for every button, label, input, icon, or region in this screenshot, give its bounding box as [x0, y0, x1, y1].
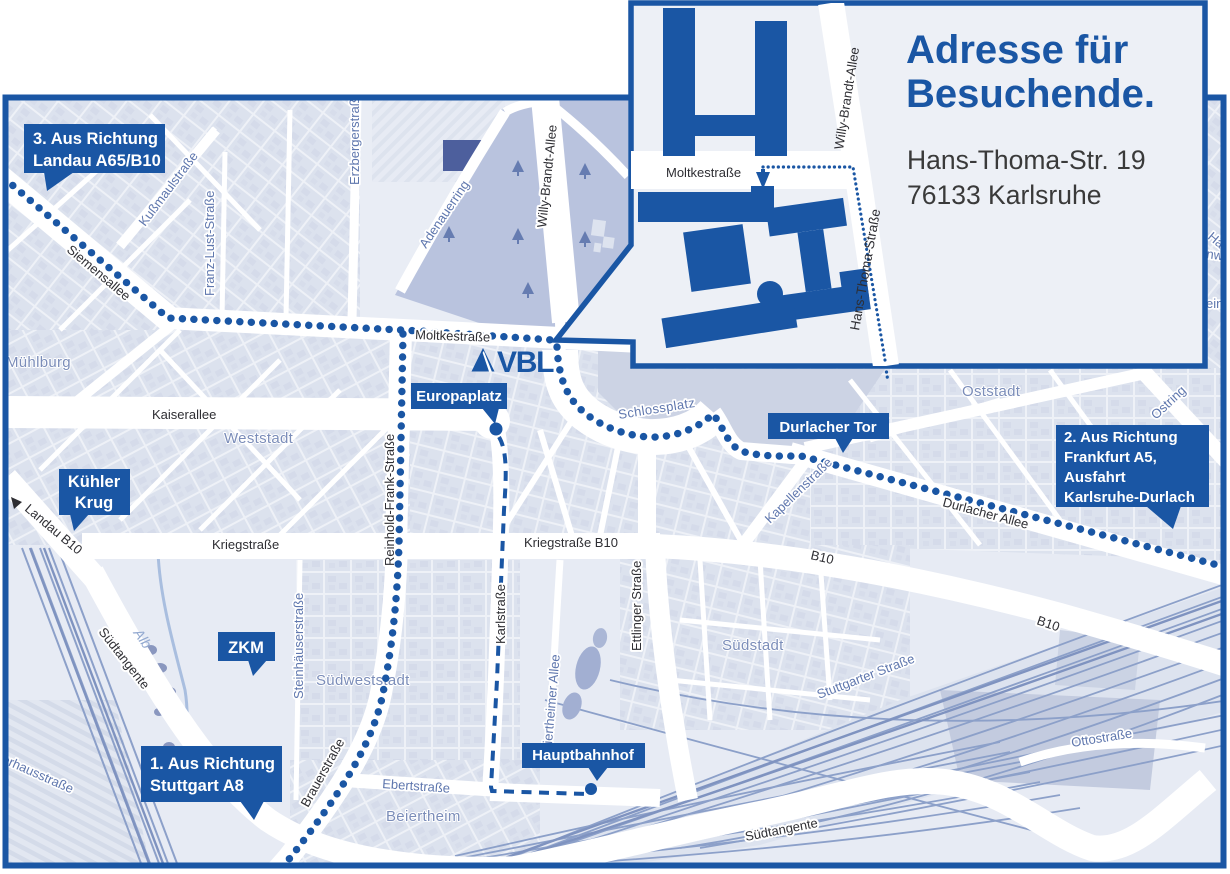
svg-text:Moltkestraße: Moltkestraße — [415, 327, 491, 345]
svg-text:Stuttgart A8: Stuttgart A8 — [150, 777, 244, 795]
svg-text:3. Aus Richtung: 3. Aus Richtung — [33, 130, 158, 148]
svg-text:Frankfurt A5,: Frankfurt A5, — [1064, 449, 1157, 466]
svg-text:Karlsruhe-Durlach: Karlsruhe-Durlach — [1064, 489, 1195, 506]
svg-text:Krug: Krug — [75, 494, 114, 512]
svg-text:Hauptbahnhof: Hauptbahnhof — [532, 747, 635, 764]
svg-text:ZKM: ZKM — [228, 639, 264, 657]
svg-text:Südweststadt: Südweststadt — [316, 672, 410, 689]
svg-text:Steinhäuserstraße: Steinhäuserstraße — [291, 593, 306, 699]
svg-text:Karlstraße: Karlstraße — [493, 584, 508, 644]
svg-text:Erzbergerstraße: Erzbergerstraße — [347, 91, 362, 185]
svg-text:Europaplatz: Europaplatz — [416, 388, 502, 405]
svg-text:Mühlburg: Mühlburg — [6, 354, 71, 371]
svg-text:Franz-Lust-Straße: Franz-Lust-Straße — [202, 191, 217, 296]
svg-text:Kriegstraße B10: Kriegstraße B10 — [524, 535, 618, 550]
svg-text:Ettlinger Straße: Ettlinger Straße — [629, 561, 644, 651]
svg-text:76133 Karlsruhe: 76133 Karlsruhe — [907, 180, 1101, 210]
svg-text:Reinhold-Frank-Straße: Reinhold-Frank-Straße — [382, 434, 397, 566]
svg-text:Kriegstraße: Kriegstraße — [212, 537, 279, 552]
svg-text:Durlacher Tor: Durlacher Tor — [779, 419, 876, 436]
svg-text:VBL: VBL — [497, 346, 554, 379]
svg-text:Landau A65/B10: Landau A65/B10 — [33, 152, 161, 170]
svg-text:2. Aus Richtung: 2. Aus Richtung — [1064, 429, 1178, 446]
svg-text:Moltkestraße: Moltkestraße — [666, 165, 741, 180]
svg-text:Ausfahrt: Ausfahrt — [1064, 469, 1126, 486]
svg-text:Besuchende.: Besuchende. — [906, 72, 1155, 116]
svg-text:Hans-Thoma-Str. 19: Hans-Thoma-Str. 19 — [907, 145, 1146, 175]
svg-text:Weststadt: Weststadt — [224, 430, 294, 447]
svg-text:Kühler: Kühler — [68, 473, 121, 491]
svg-text:Adresse für: Adresse für — [906, 28, 1128, 72]
svg-text:Beiertheim: Beiertheim — [386, 808, 461, 825]
svg-text:Südstadt: Südstadt — [722, 637, 784, 654]
svg-text:1. Aus Richtung: 1. Aus Richtung — [150, 755, 275, 773]
svg-text:Oststadt: Oststadt — [962, 383, 1021, 400]
svg-text:Kaiserallee: Kaiserallee — [152, 407, 216, 422]
